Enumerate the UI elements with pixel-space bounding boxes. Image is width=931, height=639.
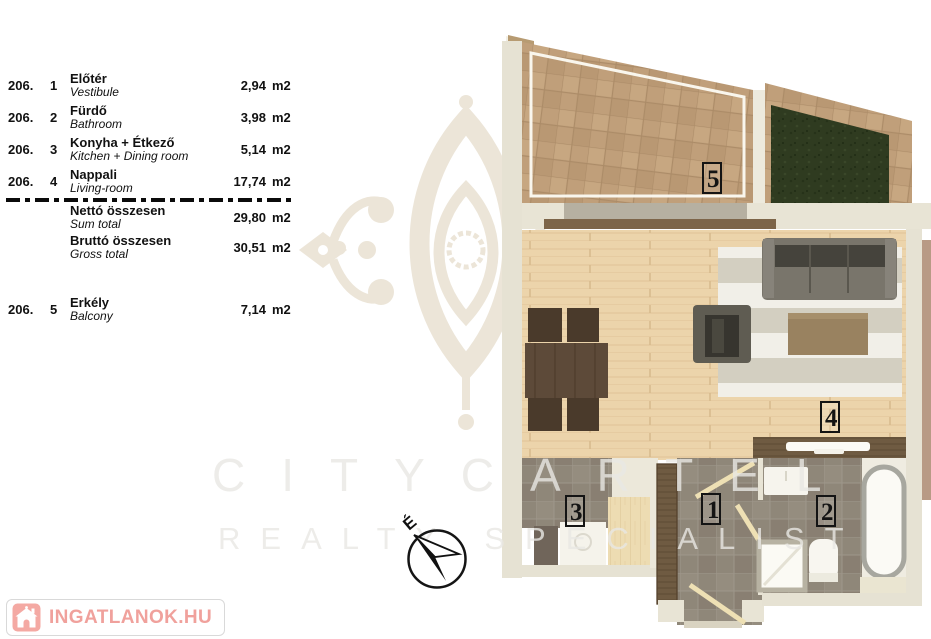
- bathtub: [864, 467, 904, 577]
- table-row-kitchen: 206. 3 Konyha + Étkező Kitchen + Dining …: [8, 136, 294, 163]
- row-number: 3: [44, 142, 64, 157]
- row-room-names: Erkély Balcony: [64, 296, 218, 323]
- total-unit: m2: [266, 240, 294, 255]
- armchair: [693, 305, 751, 363]
- row-number: 2: [44, 110, 64, 125]
- total-name-hu: Bruttó összesen: [70, 234, 218, 248]
- floorplan-drawing: 5 4 3 1 2: [500, 33, 931, 633]
- row-room-names: Konyha + Étkező Kitchen + Dining room: [64, 136, 218, 163]
- row-number: 5: [44, 302, 64, 317]
- wardrobe: [657, 464, 677, 604]
- table-row-living-room: 206. 4 Nappali Living-room 17,74 m2: [8, 168, 294, 195]
- row-room-names: Nappali Living-room: [64, 168, 218, 195]
- shower: [759, 542, 805, 590]
- row-code: 206.: [8, 302, 44, 317]
- row-room-names: Fürdő Bathroom: [64, 104, 218, 131]
- row-area-unit: m2: [266, 174, 294, 189]
- room-name-en: Bathroom: [70, 118, 218, 131]
- room-name-hu: Konyha + Étkező: [70, 136, 218, 150]
- kitchen-appliance: [534, 526, 558, 566]
- sofa: [762, 238, 897, 300]
- room-label-living-room: 4: [821, 402, 839, 432]
- room-name-hu: Nappali: [70, 168, 218, 182]
- door-sill: [544, 219, 776, 229]
- kitchen-parquet: [608, 497, 650, 565]
- room-name-en: Living-room: [70, 182, 218, 195]
- ingatlanok-logo: INGATLANOK.HU: [6, 599, 225, 636]
- total-value: 29,80: [218, 210, 266, 225]
- compass-north-arrow: É: [393, 503, 485, 599]
- row-code: 206.: [8, 142, 44, 157]
- room-name-hu: Erkély: [70, 296, 218, 310]
- tv-sideboard: [753, 437, 906, 461]
- row-area-unit: m2: [266, 142, 294, 157]
- compass-needle-light: [414, 535, 459, 557]
- total-names: Bruttó összesen Gross total: [64, 234, 218, 261]
- room-name-en: Vestibule: [70, 86, 218, 99]
- table-row-bathroom: 206. 2 Fürdő Bathroom 3,98 m2: [8, 104, 294, 131]
- total-unit: m2: [266, 210, 294, 225]
- svg-text:3: 3: [570, 499, 583, 526]
- row-area-value: 3,98: [218, 110, 266, 125]
- total-name-en: Gross total: [70, 248, 218, 261]
- kitchen-counter: [560, 522, 606, 566]
- room-label-kitchen: 3: [566, 496, 584, 526]
- vestibule: [657, 458, 764, 628]
- room-name-hu: Előtér: [70, 72, 218, 86]
- toilet: [809, 539, 838, 582]
- row-number: 1: [44, 78, 64, 93]
- sliding-door-threshold: [564, 203, 747, 221]
- living-room: [522, 230, 906, 461]
- row-room-names: Előtér Vestibule: [64, 72, 218, 99]
- room-name-en: Kitchen + Dining room: [70, 150, 218, 163]
- balcony-terrace: [522, 42, 931, 229]
- table-row-balcony: 206. 5 Erkély Balcony 7,14 m2: [8, 296, 294, 323]
- row-area-value: 7,14: [218, 302, 266, 317]
- total-name-hu: Nettó összesen: [70, 204, 218, 218]
- row-area-value: 2,94: [218, 78, 266, 93]
- floorplan-document: CITYCARTEL REALTY SPECIALIST: [0, 0, 931, 639]
- bathroom: [758, 458, 922, 606]
- totals-separator-line: [6, 198, 294, 202]
- row-code: 206.: [8, 110, 44, 125]
- room-label-balcony: 5: [703, 163, 721, 193]
- house-icon: [12, 603, 41, 632]
- table-row-net-total: Nettó összesen Sum total 29,80 m2: [8, 204, 294, 231]
- total-value: 30,51: [218, 240, 266, 255]
- row-area-unit: m2: [266, 302, 294, 317]
- row-area-value: 5,14: [218, 142, 266, 157]
- coffee-table: [788, 313, 868, 355]
- row-area-unit: m2: [266, 78, 294, 93]
- room-label-vestibule: 1: [702, 494, 720, 524]
- table-row-vestibule: 206. 1 Előtér Vestibule 2,94 m2: [8, 72, 294, 99]
- compass-north-label: É: [399, 512, 420, 534]
- entrance-threshold: [684, 621, 742, 628]
- room-name-en: Balcony: [70, 310, 218, 323]
- svg-text:4: 4: [825, 405, 838, 432]
- area-table: 206. 1 Előtér Vestibule 2,94 m2 206. 2 F…: [8, 64, 294, 334]
- row-number: 4: [44, 174, 64, 189]
- row-area-value: 17,74: [218, 174, 266, 189]
- row-code: 206.: [8, 78, 44, 93]
- table-row-gross-total: Bruttó összesen Gross total 30,51 m2: [8, 234, 294, 261]
- total-name-en: Sum total: [70, 218, 218, 231]
- svg-text:5: 5: [707, 166, 720, 193]
- room-name-hu: Fürdő: [70, 104, 218, 118]
- row-area-unit: m2: [266, 110, 294, 125]
- svg-text:2: 2: [821, 499, 834, 526]
- svg-text:1: 1: [707, 497, 720, 524]
- row-code: 206.: [8, 174, 44, 189]
- room-label-bathroom: 2: [817, 496, 835, 526]
- logo-text: INGATLANOK.HU: [49, 607, 212, 629]
- total-names: Nettó összesen Sum total: [64, 204, 218, 231]
